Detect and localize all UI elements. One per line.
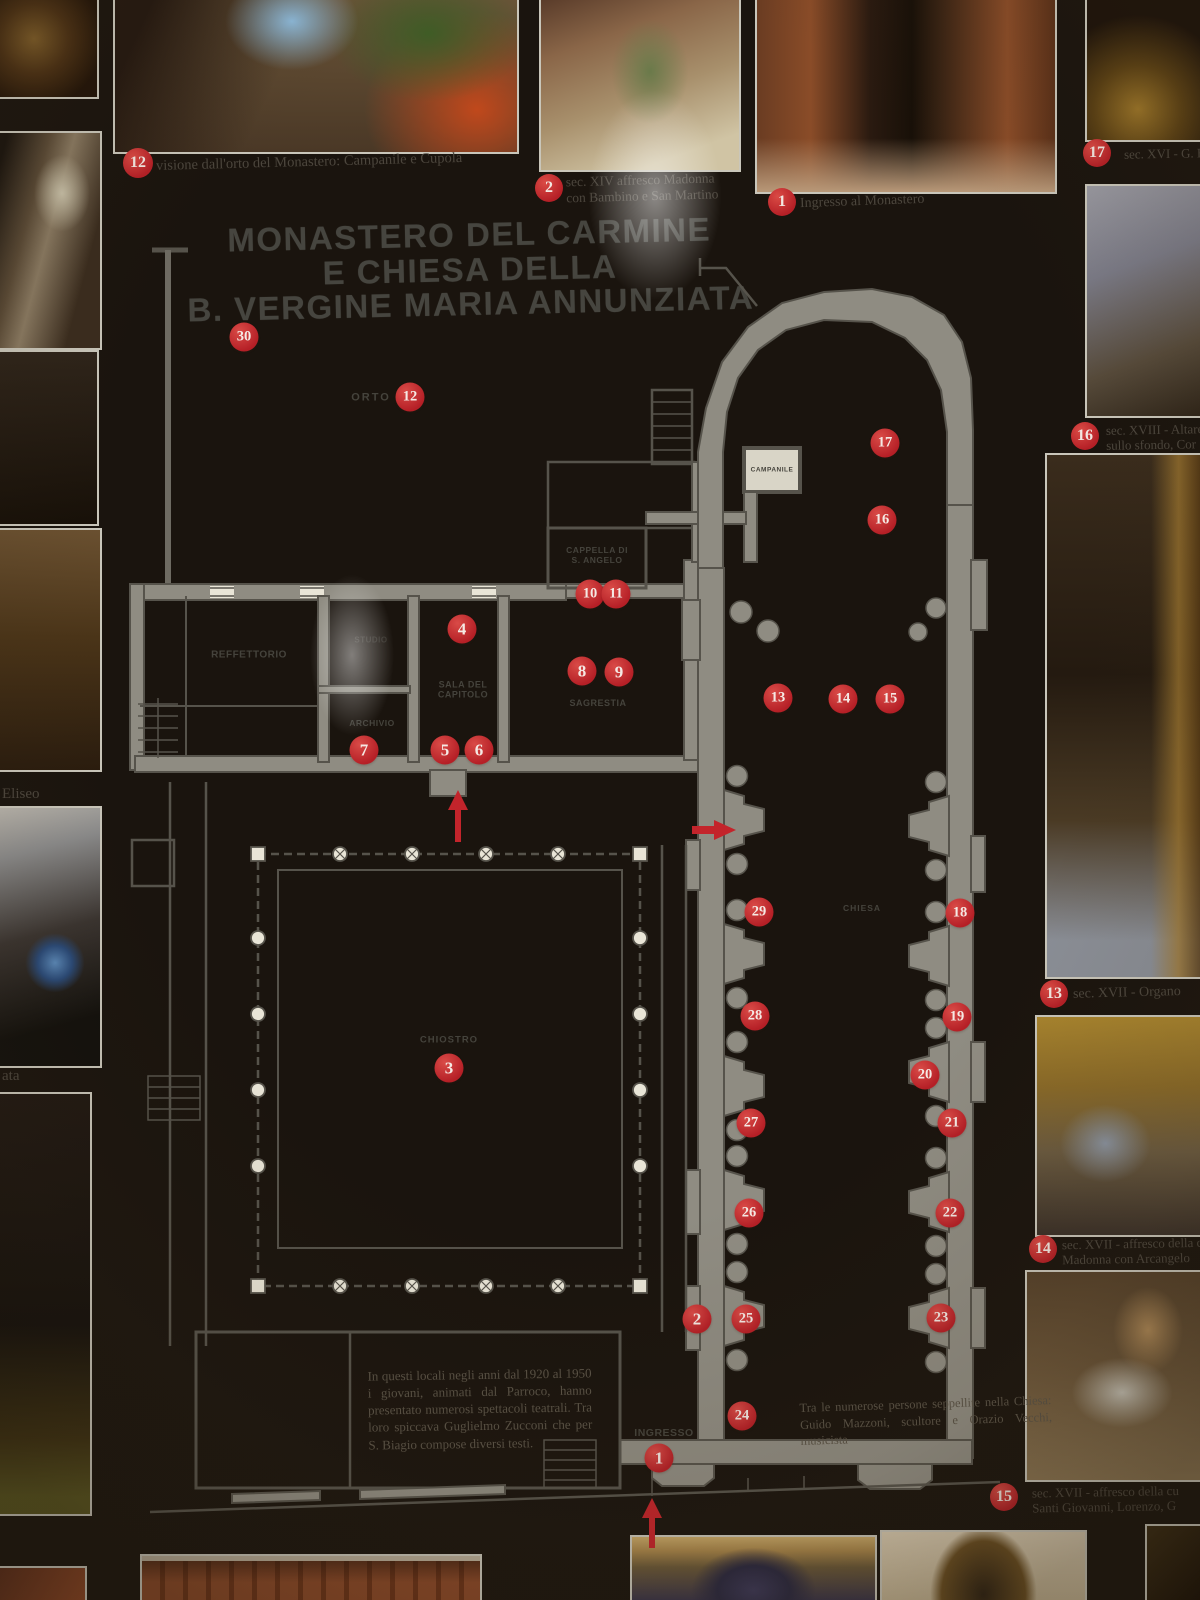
- plan-marker-17: 17: [871, 429, 900, 458]
- plan-marker-5: 5: [431, 736, 460, 765]
- plan-label-sagrestia: SAGRESTIA: [569, 698, 626, 708]
- plan-marker-14: 14: [829, 685, 858, 714]
- plan-marker-12: 12: [396, 383, 425, 412]
- plan-label-orto: ORTO: [351, 392, 391, 405]
- monastery-info-panel: 12 visione dall'orto del Monastero: Camp…: [0, 0, 1200, 1600]
- plan-annotations: 3012171610114891314157563291828192027212…: [0, 0, 1200, 1600]
- plan-marker-2: 2: [683, 1305, 712, 1334]
- plan-marker-21: 21: [938, 1109, 967, 1138]
- plan-marker-3: 3: [435, 1054, 464, 1083]
- plan-marker-23: 23: [927, 1304, 956, 1333]
- plan-marker-20: 20: [911, 1061, 940, 1090]
- plan-label-studio: STUDIO: [354, 635, 387, 644]
- plan-marker-30: 30: [230, 323, 259, 352]
- plan-marker-29: 29: [745, 898, 774, 927]
- plan-marker-22: 22: [936, 1199, 965, 1228]
- plan-label-archivio: ARCHIVIO: [349, 719, 395, 729]
- plan-label-chiesa: CHIESA: [843, 904, 881, 914]
- plan-marker-15: 15: [876, 685, 905, 714]
- plan-marker-7: 7: [350, 736, 379, 765]
- plan-label-campanile: CAMPANILE: [751, 466, 794, 473]
- plan-label-ingresso: INGRESSO: [634, 1427, 693, 1439]
- plan-marker-24: 24: [728, 1402, 757, 1431]
- plan-label-chiostro: CHIOSTRO: [420, 1036, 478, 1047]
- note-theater: In questi locali negli anni dal 1920 al …: [367, 1364, 592, 1453]
- note-church-burials: Tra le numerose persone seppellite nella…: [799, 1392, 1052, 1449]
- plan-marker-28: 28: [741, 1002, 770, 1031]
- plan-marker-6: 6: [465, 736, 494, 765]
- plan-marker-18: 18: [946, 899, 975, 928]
- plan-marker-16: 16: [868, 506, 897, 535]
- plan-marker-10: 10: [576, 580, 605, 609]
- plan-marker-25: 25: [732, 1305, 761, 1334]
- plan-marker-13: 13: [764, 684, 793, 713]
- plan-marker-11: 11: [602, 580, 631, 609]
- plan-marker-9: 9: [605, 658, 634, 687]
- plan-label-cappella: CAPPELLA DI S. ANGELO: [566, 546, 628, 566]
- plan-marker-27: 27: [737, 1109, 766, 1138]
- plan-marker-1: 1: [645, 1444, 674, 1473]
- plan-marker-4: 4: [448, 615, 477, 644]
- plan-label-sala-del-capitolo: SALA DEL CAPITOLO: [438, 680, 488, 701]
- plan-marker-26: 26: [735, 1199, 764, 1228]
- plan-marker-8: 8: [568, 657, 597, 686]
- plan-marker-19: 19: [943, 1003, 972, 1032]
- plan-label-reffettorio: REFFETTORIO: [211, 649, 287, 661]
